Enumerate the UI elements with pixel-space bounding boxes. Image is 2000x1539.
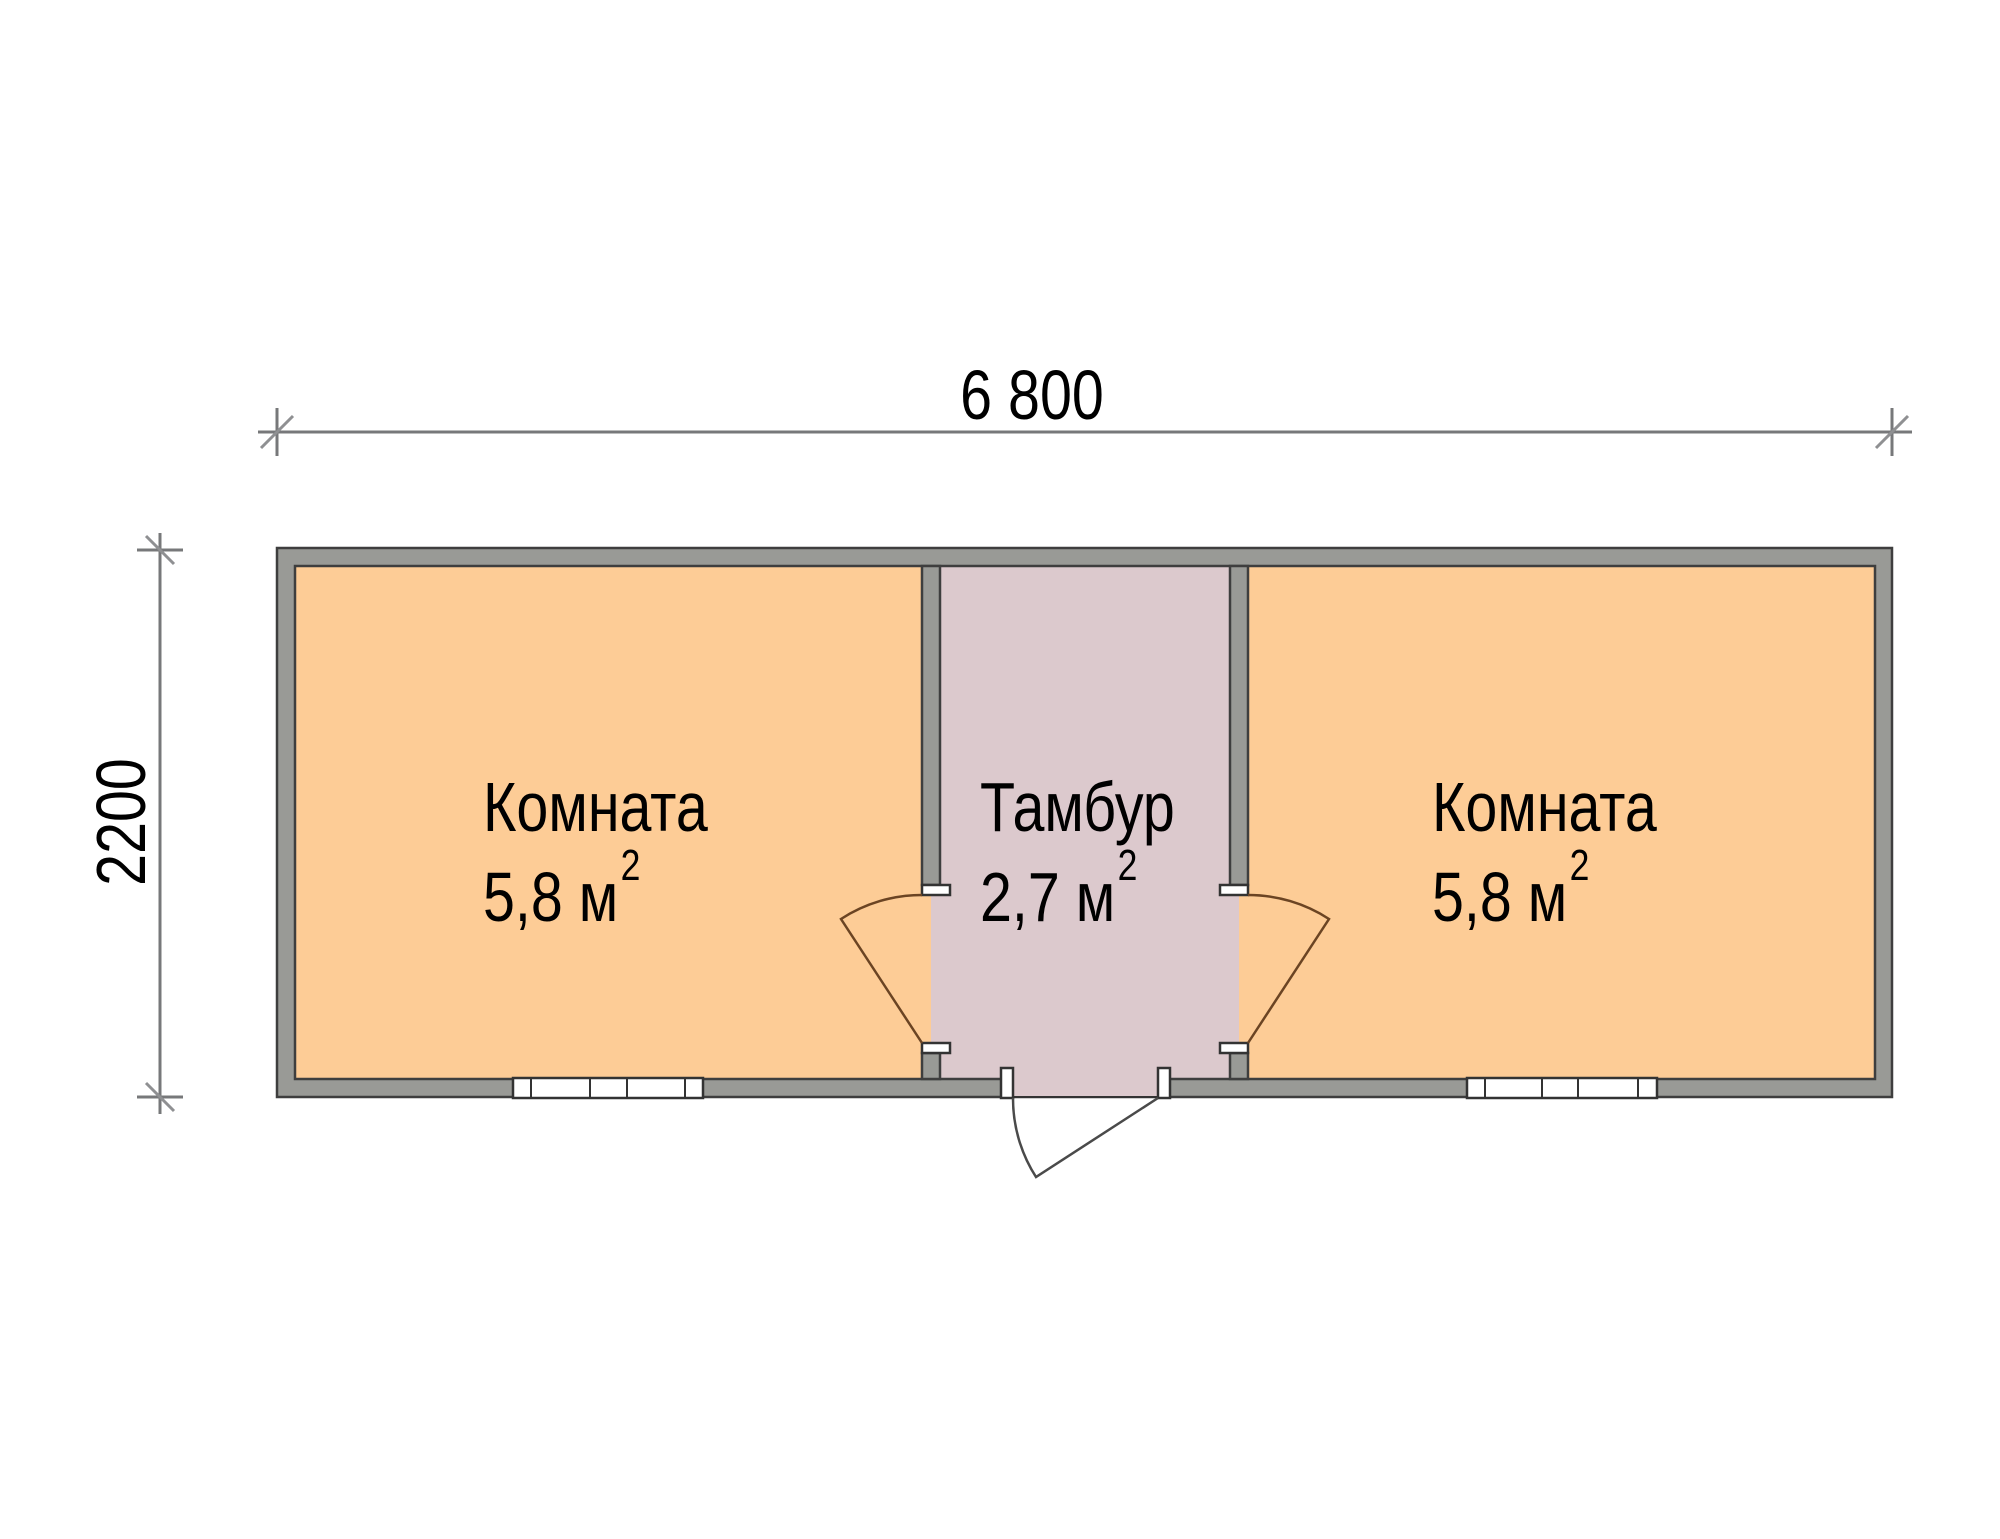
room-right-area-superscript: 2	[1570, 842, 1590, 890]
room-right-area: 5,8 м2	[1432, 852, 1657, 942]
door-jamb	[1158, 1068, 1170, 1098]
vestibule-name: Тамбур	[980, 762, 1175, 852]
doorway-right-vestibule-side	[1229, 894, 1239, 1044]
room-left-name: Комната	[483, 762, 708, 852]
partition-left-stub	[922, 1053, 940, 1079]
doorway-right-room-side	[1239, 894, 1249, 1044]
partition-left-upper	[922, 566, 940, 885]
vestibule-label: Тамбур 2,7 м2	[980, 762, 1175, 942]
door-swing-entrance	[1013, 1098, 1158, 1177]
room-right-label: Комната 5,8 м2	[1432, 762, 1657, 942]
room-right-area-value: 5,8 м	[1432, 858, 1567, 936]
doorway-left-vestibule-side	[931, 894, 941, 1044]
window-frame	[513, 1078, 703, 1098]
dimension-label-width: 6 800	[868, 360, 1196, 430]
window-symbol-right	[1467, 1078, 1657, 1098]
doorway-left-room-side	[921, 894, 931, 1044]
window-frame	[1467, 1078, 1657, 1098]
vestibule-area-value: 2,7 м	[980, 858, 1115, 936]
room-left-area-superscript: 2	[621, 842, 641, 890]
dimension-label-height: 2200	[86, 699, 156, 945]
doorway-entrance-floor	[1013, 1077, 1158, 1097]
door-jamb	[922, 1043, 950, 1053]
vestibule-area: 2,7 м2	[980, 852, 1175, 942]
door-jamb	[1220, 885, 1248, 895]
door-jamb	[1001, 1068, 1013, 1098]
door-jamb	[922, 885, 950, 895]
partition-right-stub	[1230, 1053, 1248, 1079]
window-symbol-left	[513, 1078, 703, 1098]
room-right-name: Комната	[1432, 762, 1657, 852]
room-left-area: 5,8 м2	[483, 852, 708, 942]
room-left-area-value: 5,8 м	[483, 858, 618, 936]
door-jamb	[1220, 1043, 1248, 1053]
floor-plan-page: 6 800 2200 Комната 5,8 м2 Тамбур 2,7 м2 …	[0, 0, 2000, 1539]
vestibule-area-superscript: 2	[1118, 842, 1138, 890]
room-left-label: Комната 5,8 м2	[483, 762, 708, 942]
partition-right-upper	[1230, 566, 1248, 885]
